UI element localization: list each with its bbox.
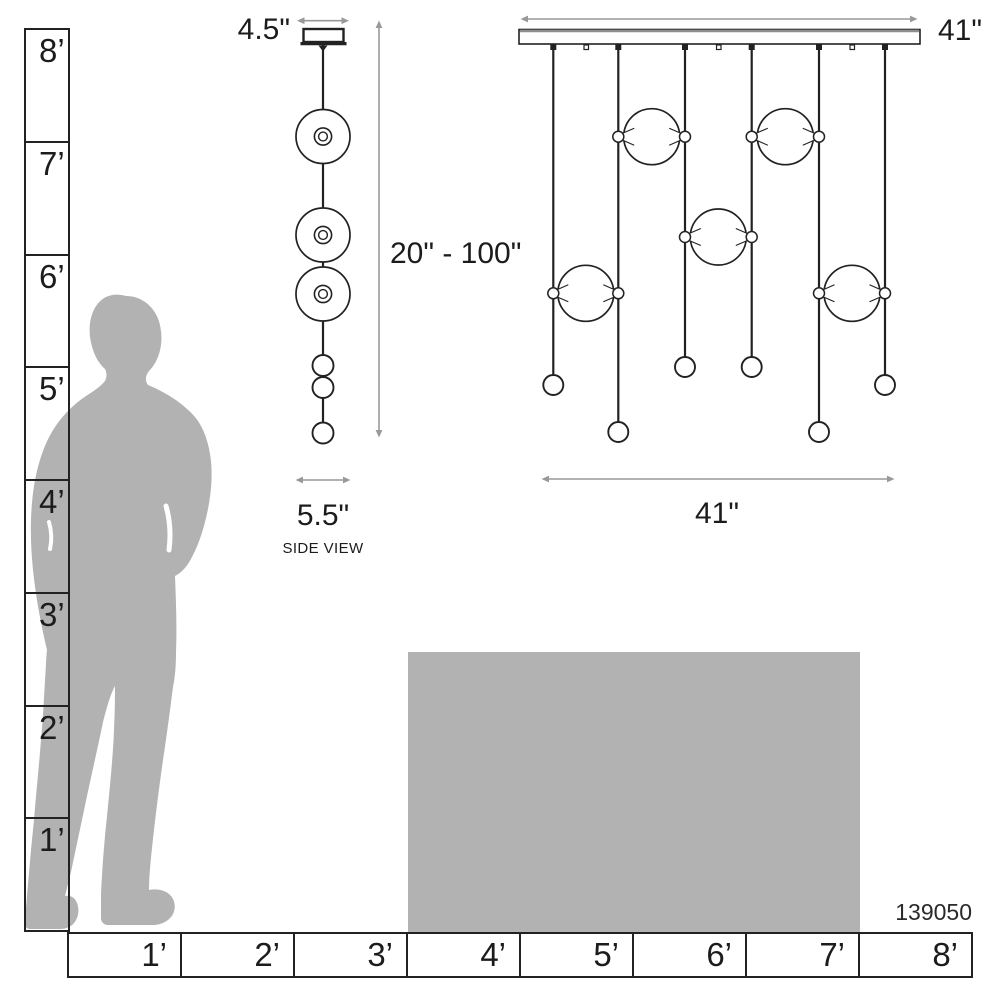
width-ruler-cell: 7’ xyxy=(747,934,860,976)
width-ruler-cell: 3’ xyxy=(295,934,408,976)
front-fixture-width-label: 41" xyxy=(674,497,760,531)
front-orb-knob xyxy=(680,232,691,243)
front-canopy-screw xyxy=(717,45,722,50)
front-ball xyxy=(742,357,762,377)
width-ruler: 1’ 2’ 3’ 4’ 5’ 6’ 7’ 8’ xyxy=(67,932,973,978)
width-ruler-label: 1’ xyxy=(141,934,180,975)
front-canopy-width-label: 41" xyxy=(938,14,982,48)
width-ruler-cell: 1’ xyxy=(69,934,182,976)
height-ruler-label: 2’ xyxy=(26,707,68,746)
front-ball xyxy=(675,357,695,377)
front-orb xyxy=(548,265,624,321)
height-ruler-cell: 6’ xyxy=(26,256,68,369)
front-orb xyxy=(680,209,758,265)
side-disc xyxy=(296,208,350,262)
front-rod-cap xyxy=(749,44,755,50)
width-ruler-label: 7’ xyxy=(819,934,858,975)
front-view-drawing xyxy=(510,10,930,490)
front-orb-knob xyxy=(746,232,757,243)
width-ruler-label: 6’ xyxy=(706,934,745,975)
front-rod-cap xyxy=(682,44,688,50)
height-ruler-cell: 4’ xyxy=(26,481,68,594)
width-ruler-label: 4’ xyxy=(480,934,519,975)
width-ruler-label: 3’ xyxy=(367,934,406,975)
side-fixture-width-arrow xyxy=(296,477,351,484)
product-number: 139050 xyxy=(848,899,972,925)
front-orb-knob xyxy=(746,131,757,142)
side-disc-hub-inner xyxy=(319,290,328,299)
front-orb xyxy=(814,265,891,321)
height-ruler-label: 7’ xyxy=(26,143,68,182)
height-ruler-label: 3’ xyxy=(26,594,68,633)
side-disc-hub-inner xyxy=(319,132,328,141)
height-ruler-label: 4’ xyxy=(26,481,68,520)
front-orb-knob xyxy=(880,288,891,299)
table-silhouette xyxy=(408,652,860,932)
height-ruler: 8’ 7’ 6’ 5’ 4’ 3’ 2’ 1’ xyxy=(24,28,70,932)
front-orb-knob xyxy=(814,131,825,142)
width-ruler-cell: 8’ xyxy=(860,934,971,976)
front-ball xyxy=(875,375,895,395)
height-ruler-cell: 8’ xyxy=(26,30,68,143)
side-height-arrow xyxy=(376,21,383,438)
front-rod-cap xyxy=(816,44,822,50)
width-ruler-cell: 6’ xyxy=(634,934,747,976)
side-canopy-width-label: 4.5" xyxy=(228,13,290,47)
height-ruler-cell: 5’ xyxy=(26,368,68,481)
side-ball xyxy=(313,377,334,398)
front-orb-knob xyxy=(613,288,624,299)
height-ruler-label: 8’ xyxy=(26,30,68,69)
front-fixture-width-arrow xyxy=(542,476,895,483)
height-ruler-label: 5’ xyxy=(26,368,68,407)
front-rod-cap xyxy=(882,44,888,50)
width-ruler-label: 2’ xyxy=(254,934,293,975)
height-ruler-cell: 7’ xyxy=(26,143,68,256)
front-rod-cap xyxy=(550,44,556,50)
side-canopy xyxy=(304,29,344,42)
lighting-dimension-diagram: 8’ 7’ 6’ 5’ 4’ 3’ 2’ 1’ 1’ 2’ 3’ 4’ 5’ 6… xyxy=(0,0,1000,1000)
height-ruler-cell: 1’ xyxy=(26,819,68,930)
side-canopy-width-arrow xyxy=(297,17,349,24)
front-rod-cap xyxy=(615,44,621,50)
width-ruler-label: 5’ xyxy=(593,934,632,975)
side-ball xyxy=(313,423,334,444)
front-canopy-screw xyxy=(584,45,589,50)
front-orb-knob xyxy=(613,131,624,142)
front-orb-knob xyxy=(548,288,559,299)
front-ball xyxy=(608,422,628,442)
front-orb-knob xyxy=(814,288,825,299)
width-ruler-cell: 5’ xyxy=(521,934,634,976)
width-ruler-label: 8’ xyxy=(932,934,971,975)
width-ruler-cell: 2’ xyxy=(182,934,295,976)
side-view-caption: SIDE VIEW xyxy=(266,540,380,558)
height-ruler-cell: 3’ xyxy=(26,594,68,707)
height-ruler-label: 1’ xyxy=(26,819,68,858)
height-ruler-label: 6’ xyxy=(26,256,68,295)
front-orb xyxy=(746,109,824,165)
side-suspension-range-label: 20" - 100" xyxy=(390,237,521,271)
side-ball xyxy=(313,355,334,376)
front-orb xyxy=(613,109,691,165)
side-disc xyxy=(296,110,350,164)
side-view-drawing xyxy=(280,5,400,490)
width-ruler-cell: 4’ xyxy=(408,934,521,976)
side-disc-hub-inner xyxy=(319,231,328,240)
side-disc xyxy=(296,267,350,321)
front-canopy-screw xyxy=(850,45,855,50)
front-orb-knob xyxy=(680,131,691,142)
front-ball xyxy=(543,375,563,395)
front-ball xyxy=(809,422,829,442)
height-ruler-cell: 2’ xyxy=(26,707,68,820)
side-fixture-width-label: 5.5" xyxy=(281,499,365,533)
front-canopy-width-arrow xyxy=(521,16,918,23)
